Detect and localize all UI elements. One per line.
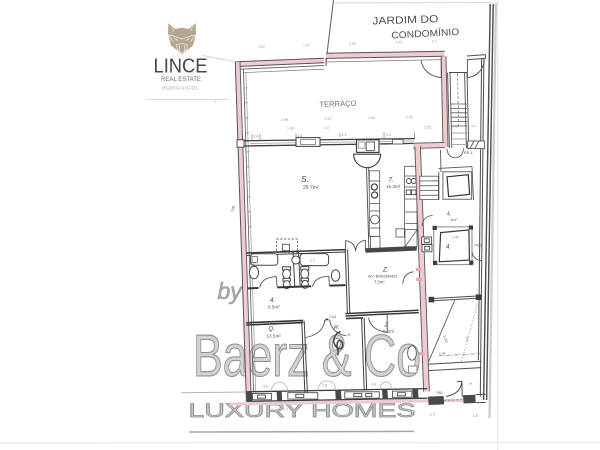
svg-text:2.3: 2.3 [432, 39, 437, 43]
svg-text:1.98: 1.98 [281, 118, 288, 122]
svg-text:2.5: 2.5 [324, 126, 329, 130]
svg-text:1.44: 1.44 [439, 352, 446, 356]
svg-text:16.3m²: 16.3m² [386, 184, 401, 189]
svg-text:1.06: 1.06 [451, 125, 458, 129]
svg-text:4.00: 4.00 [349, 42, 356, 46]
svg-text:JARDIM DO: JARDIM DO [372, 13, 438, 27]
svg-text:7.5m²: 7.5m² [374, 280, 385, 285]
svg-text:LINCE: LINCE [154, 55, 208, 78]
svg-text:2.03: 2.03 [406, 115, 413, 119]
svg-text:1.7: 1.7 [310, 259, 315, 263]
svg-text:1.0: 1.0 [430, 413, 435, 417]
svg-text:TERRAÇO: TERRAÇO [319, 99, 356, 109]
svg-text:1.52: 1.52 [424, 126, 431, 130]
svg-text:P61: P61 [437, 391, 443, 395]
svg-text:3: 3 [468, 382, 472, 384]
svg-text:1.40: 1.40 [287, 127, 294, 131]
svg-text:R.: R. [334, 325, 339, 331]
svg-text:1.1: 1.1 [471, 124, 476, 128]
svg-text:RESIDENTIAL & OFFICES: RESIDENTIAL & OFFICES [162, 86, 198, 91]
svg-text:1.8: 1.8 [473, 414, 478, 418]
svg-text:B.P: B.P [250, 262, 256, 266]
svg-text:2.00: 2.00 [452, 236, 459, 240]
svg-text:29.7m²: 29.7m² [303, 185, 319, 191]
svg-text:1.03: 1.03 [395, 40, 402, 44]
svg-text:2.4: 2.4 [298, 134, 303, 138]
svg-text:4.: 4. [270, 298, 275, 304]
svg-text:4.00: 4.00 [368, 116, 375, 120]
svg-text:5.5m²: 5.5m² [268, 305, 280, 310]
svg-text:W.C ENGOMADO: W.C ENGOMADO [368, 275, 397, 279]
svg-text:Z.: Z. [382, 268, 388, 274]
svg-text:2.4: 2.4 [254, 135, 259, 139]
svg-text:by: by [218, 278, 244, 304]
svg-text:2.4: 2.4 [342, 133, 347, 137]
svg-text:9.2m²: 9.2m² [383, 329, 395, 334]
svg-text:7.: 7. [389, 177, 395, 184]
svg-text:2.37: 2.37 [325, 117, 332, 121]
svg-text:REAL ESTATE: REAL ESTATE [161, 76, 202, 83]
svg-text:Z.: Z. [384, 323, 390, 329]
svg-text:1m²: 1m² [450, 217, 458, 222]
svg-text:–9: –9 [346, 332, 351, 337]
svg-text:4.: 4. [446, 245, 451, 251]
svg-text:Q.: Q. [269, 327, 275, 333]
svg-text:1.0: 1.0 [283, 408, 288, 412]
svg-text:P.E.1: P.E.1 [464, 151, 473, 155]
svg-text:3.4: 3.4 [371, 383, 376, 387]
svg-text:P6.1: P6.1 [475, 244, 482, 248]
svg-text:3.2: 3.2 [263, 385, 268, 389]
svg-text:S.: S. [301, 174, 309, 184]
svg-text:1.37: 1.37 [303, 43, 310, 47]
svg-text:2.8: 2.8 [322, 384, 327, 388]
svg-text:13.5m²: 13.5m² [267, 334, 282, 339]
svg-text:2.0: 2.0 [352, 407, 357, 411]
svg-text:7m: 7m [231, 205, 236, 212]
svg-text:1.64: 1.64 [329, 315, 336, 319]
svg-text:2.62: 2.62 [258, 45, 265, 49]
svg-text:2.4: 2.4 [386, 133, 391, 137]
